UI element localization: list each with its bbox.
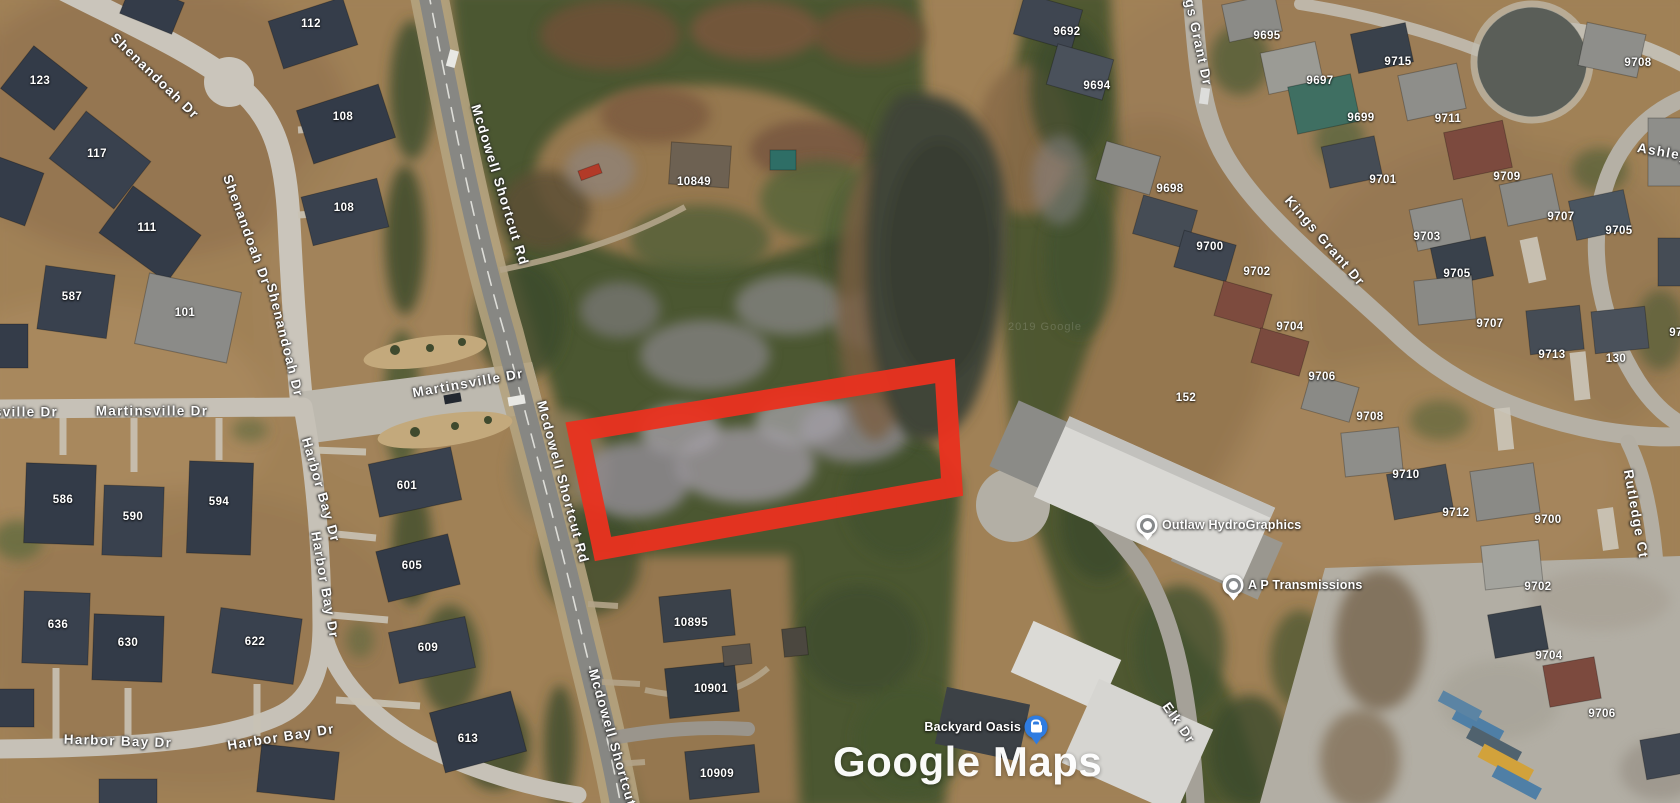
house-number-label: 9712	[1442, 507, 1469, 519]
street-label: Mcdowell Shortcut Rd	[468, 103, 531, 268]
street-label: Martinsville Dr	[96, 404, 209, 419]
street-label: Ashley	[1636, 140, 1680, 164]
poi-dot-icon	[1226, 578, 1241, 593]
house-number-label: 9701	[1369, 174, 1396, 186]
place-label[interactable]: Backyard Oasis	[924, 720, 1021, 734]
house-number-label: 9699	[1347, 112, 1374, 124]
house-number-label: 111	[137, 222, 156, 234]
place-label[interactable]: A P Transmissions	[1248, 578, 1363, 592]
street-label: Kings Grant Dr	[1177, 0, 1215, 87]
house-number-label: 9697	[1306, 75, 1333, 87]
house-number-label: 587	[62, 291, 82, 303]
house-number-label: 9710	[1392, 469, 1419, 481]
street-label: Shenandoah Dr	[264, 282, 307, 399]
house-number-label: 601	[397, 480, 417, 492]
street-label: Harbor Bay Dr	[299, 436, 343, 544]
house-number-label: 9703	[1413, 231, 1440, 243]
house-number-label: 9707	[1547, 211, 1574, 223]
house-number-label: 117	[87, 148, 107, 160]
google-maps-satellite-view[interactable]: Shenandoah DrShenandoah DrShenandoah DrM…	[0, 0, 1680, 803]
street-label: Elk Dr	[1159, 700, 1198, 747]
street-label: Shenandoah Dr	[108, 30, 202, 122]
house-number-label: 9698	[1156, 183, 1183, 195]
house-number-label: 622	[245, 636, 265, 648]
map-labels-layer: Shenandoah DrShenandoah DrShenandoah DrM…	[0, 0, 1680, 803]
street-label: Mcdowell Shortcut Rd	[586, 667, 647, 803]
house-number-label: 9702	[1524, 581, 1551, 593]
house-number-label: 630	[118, 637, 138, 649]
house-number-label: 123	[30, 75, 50, 87]
street-label: Rutledge Ct	[1621, 468, 1651, 559]
house-number-label: 10895	[674, 617, 708, 629]
house-number-label: 9708	[1356, 411, 1383, 423]
house-number-label: 9694	[1083, 80, 1110, 92]
place-pin[interactable]	[1137, 515, 1158, 536]
house-number-label: 636	[48, 619, 68, 631]
house-number-label: 9702	[1243, 266, 1270, 278]
house-number-label: 112	[301, 18, 321, 30]
house-number-label: 130	[1606, 353, 1626, 365]
house-number-label: 101	[175, 307, 195, 319]
house-number-label: 9695	[1253, 30, 1280, 42]
imagery-watermark: 2019 Google	[1008, 321, 1082, 333]
house-number-label: 9707	[1476, 318, 1503, 330]
house-number-label: 10901	[694, 683, 728, 695]
house-number-label: 10849	[677, 176, 711, 188]
house-number-label: 108	[333, 111, 353, 123]
poi-dot-icon	[1140, 518, 1155, 533]
place-pin[interactable]	[1223, 575, 1244, 596]
house-number-label: 10909	[700, 768, 734, 780]
house-number-label: 613	[458, 733, 478, 745]
house-number-label: 97	[1669, 327, 1680, 339]
house-number-label: 9713	[1538, 349, 1565, 361]
street-label: Mcdowell Shortcut Rd	[534, 399, 592, 565]
street-label: Harbor Bay Dr	[226, 721, 335, 753]
google-maps-logo: Google Maps	[833, 738, 1102, 786]
place-pin[interactable]	[1025, 716, 1048, 739]
house-number-label: 590	[123, 511, 143, 523]
house-number-label: 9711	[1435, 113, 1462, 125]
house-number-label: 9704	[1535, 650, 1562, 662]
house-number-label: 9700	[1196, 241, 1223, 253]
shop-icon	[1031, 724, 1042, 732]
house-number-label: 9705	[1443, 268, 1470, 280]
house-number-label: 9706	[1308, 371, 1335, 383]
house-number-label: 9715	[1384, 56, 1411, 68]
street-label: Harbor Bay Dr	[308, 530, 342, 639]
house-number-label: 9700	[1534, 514, 1561, 526]
house-number-label: 9705	[1605, 225, 1632, 237]
place-label[interactable]: Outlaw HydroGraphics	[1162, 518, 1301, 532]
street-label: sville Dr	[0, 405, 58, 420]
street-label: Martinsville Dr	[411, 366, 524, 400]
street-label: Kings Grant Dr	[1282, 193, 1368, 289]
house-number-label: 9692	[1053, 26, 1080, 38]
street-label: Shenandoah Dr	[220, 173, 274, 288]
house-number-label: 594	[209, 496, 229, 508]
house-number-label: 609	[418, 642, 438, 654]
house-number-label: 9709	[1493, 171, 1520, 183]
house-number-label: 152	[1176, 392, 1196, 404]
house-number-label: 9706	[1588, 708, 1615, 720]
street-label: Harbor Bay Dr	[64, 732, 173, 751]
house-number-label: 9704	[1276, 321, 1303, 333]
house-number-label: 9708	[1624, 57, 1651, 69]
house-number-label: 108	[334, 202, 354, 214]
house-number-label: 605	[402, 560, 422, 572]
house-number-label: 586	[53, 494, 73, 506]
